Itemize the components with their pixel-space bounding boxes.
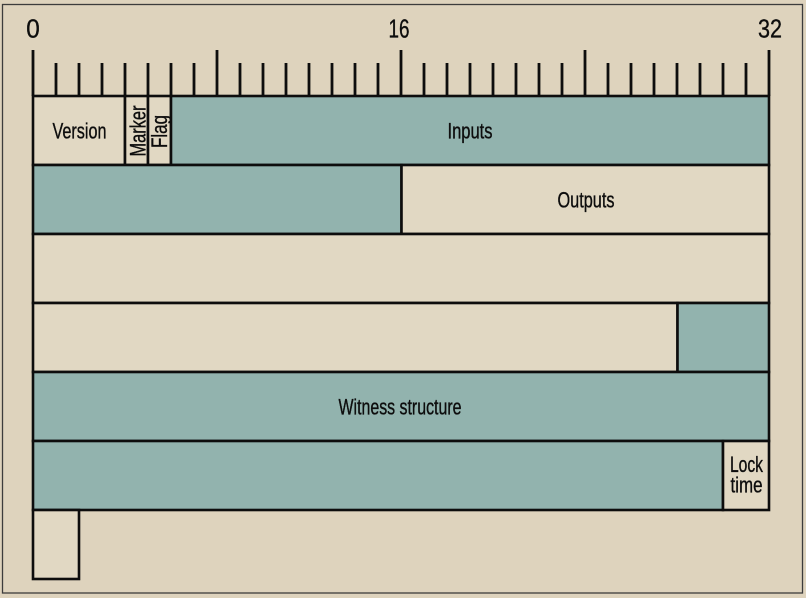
svg-text:Witness structure: Witness structure [339, 395, 462, 420]
svg-text:time: time [731, 473, 763, 498]
svg-text:16: 16 [389, 14, 410, 44]
svg-text:0: 0 [26, 14, 40, 44]
svg-text:Inputs: Inputs [448, 119, 493, 144]
svg-text:Outputs: Outputs [558, 188, 615, 213]
svg-text:Version: Version [53, 119, 107, 144]
svg-text:32: 32 [758, 14, 782, 44]
svg-text:Flag: Flag [147, 115, 172, 148]
